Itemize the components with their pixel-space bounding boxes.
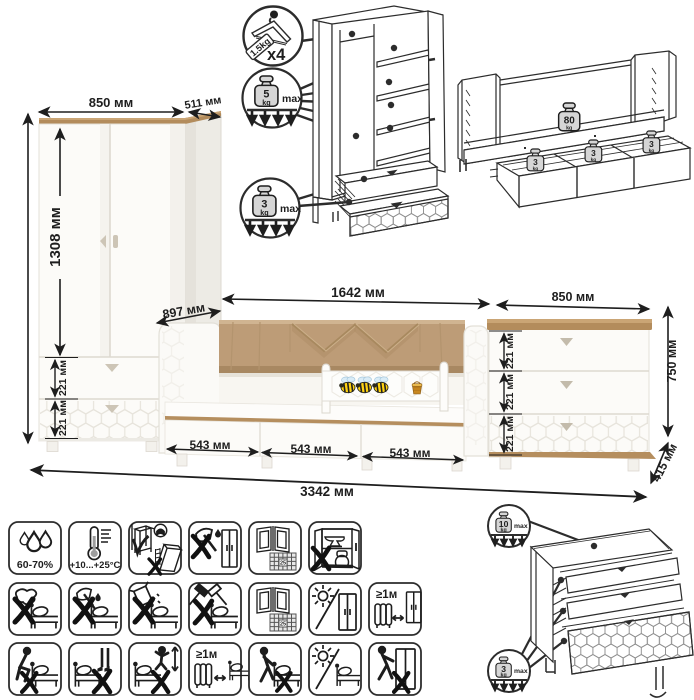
svg-text:≥1м: ≥1м [376, 589, 397, 601]
svg-text:1308 мм: 1308 мм [47, 207, 64, 267]
svg-text:max: max [280, 203, 301, 215]
svg-text:221 мм: 221 мм [504, 416, 516, 452]
svg-text:+10...+25°C: +10...+25°C [70, 560, 121, 571]
svg-text:max: max [514, 523, 528, 530]
svg-text:kg: kg [649, 148, 655, 153]
svg-text:850 мм: 850 мм [552, 290, 595, 304]
svg-text:x4: x4 [267, 46, 286, 64]
svg-text:543 мм: 543 мм [290, 442, 331, 456]
svg-text:kg: kg [262, 98, 270, 107]
svg-text:221 мм: 221 мм [504, 374, 516, 410]
svg-text:3342 мм: 3342 мм [300, 484, 354, 499]
svg-text:1642 мм: 1642 мм [331, 285, 385, 300]
svg-text:kg: kg [566, 125, 572, 131]
svg-text:kg: kg [260, 208, 268, 217]
svg-text:kg: kg [501, 528, 507, 534]
svg-text:511 мм: 511 мм [184, 94, 222, 112]
svg-text:kg: kg [533, 166, 539, 171]
svg-text:kg: kg [501, 673, 507, 679]
svg-text:≥1м: ≥1м [196, 649, 217, 661]
svg-text:221 мм: 221 мм [57, 360, 69, 396]
svg-text:221 мм: 221 мм [504, 333, 516, 369]
svg-text:415 мм: 415 мм [649, 441, 680, 484]
svg-text:221 мм: 221 мм [57, 400, 69, 436]
svg-text:max: max [282, 93, 303, 105]
svg-text:kg: kg [591, 157, 597, 162]
svg-text:max: max [514, 668, 528, 675]
svg-text:543 мм: 543 мм [389, 446, 430, 460]
svg-text:850 мм: 850 мм [89, 95, 134, 110]
svg-text:543 мм: 543 мм [189, 438, 230, 452]
svg-text:750 мм: 750 мм [665, 340, 679, 383]
svg-text:60-70%: 60-70% [17, 559, 54, 571]
